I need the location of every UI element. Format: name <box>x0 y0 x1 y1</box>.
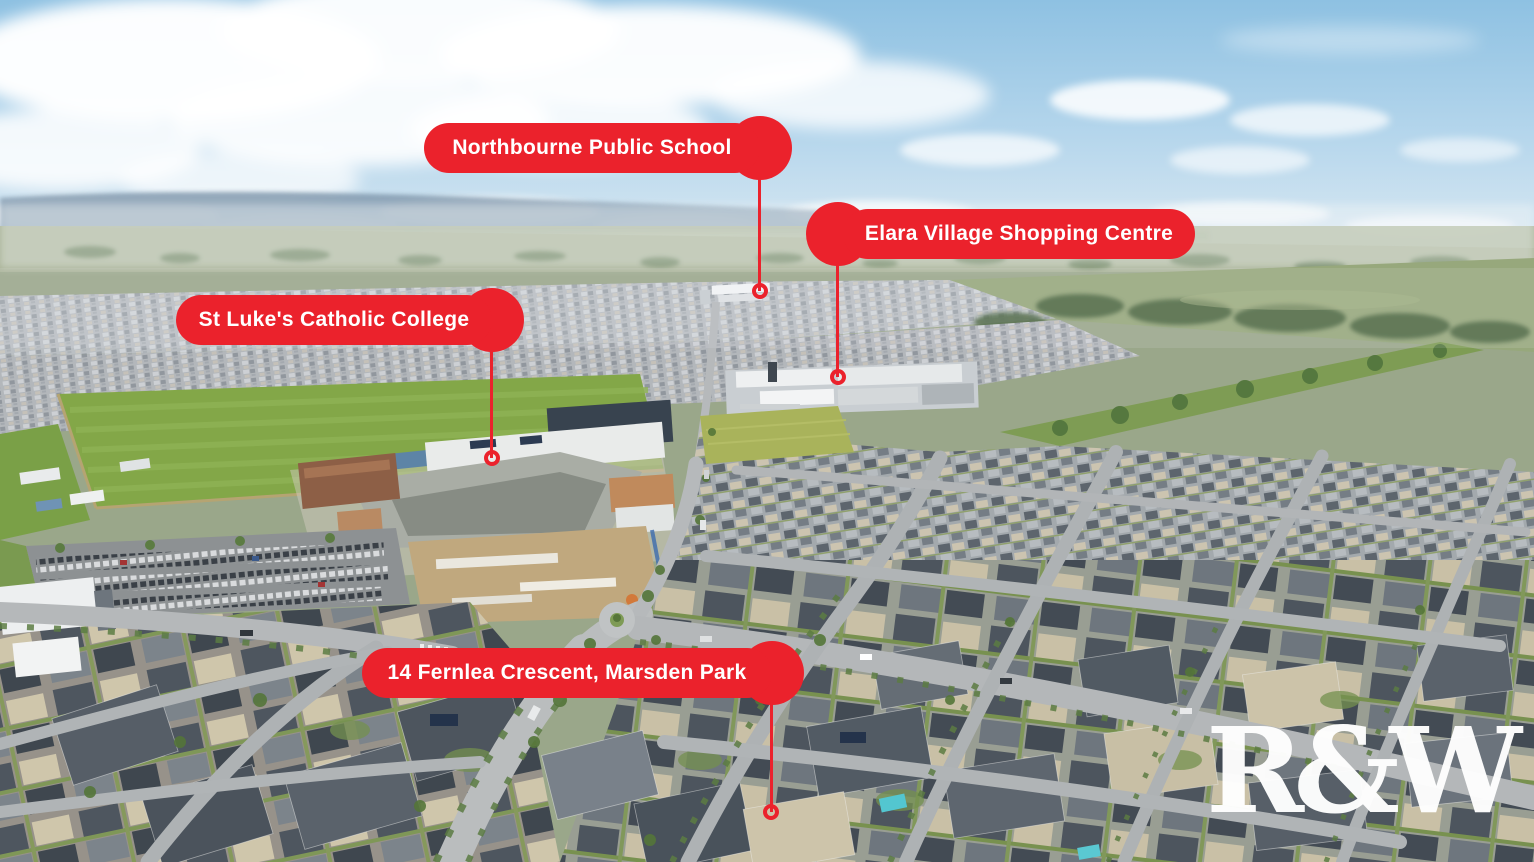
callout-label: Elara Village Shopping Centre <box>843 209 1195 259</box>
callout-label: Northbourne Public School <box>424 123 760 173</box>
callout-label: 14 Fernlea Crescent, Marsden Park <box>362 648 772 698</box>
callout-label: St Luke's Catholic College <box>176 295 492 345</box>
rw-logo: R&W <box>1206 712 1511 830</box>
location-ring-icon <box>830 369 846 385</box>
location-ring-icon <box>763 804 779 820</box>
aerial-promo-image: Northbourne Public School Elara Village … <box>0 0 1534 862</box>
location-ring-icon <box>752 283 768 299</box>
location-ring-icon <box>484 450 500 466</box>
roundabout <box>599 602 635 638</box>
